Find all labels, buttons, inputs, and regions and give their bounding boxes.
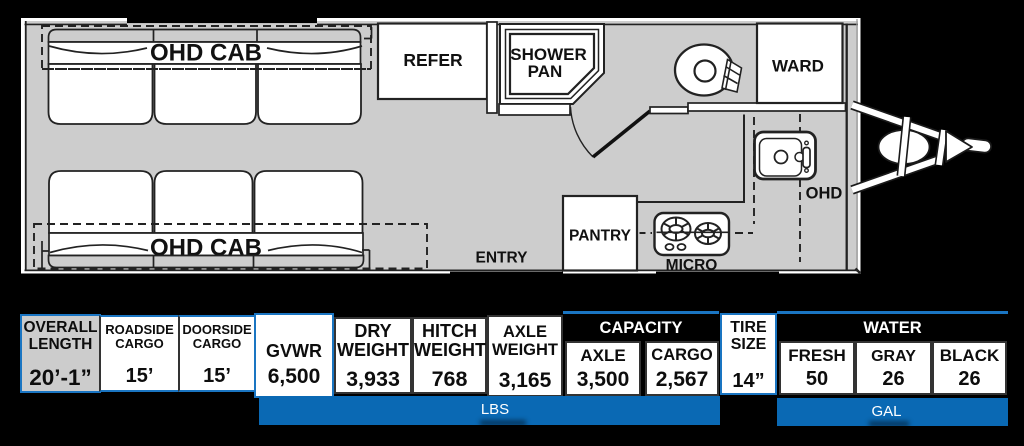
svg-text:ENTRY: ENTRY [476,250,529,267]
svg-text:PAN: PAN [528,62,563,81]
svg-text:OHD CAB: OHD CAB [150,40,262,67]
svg-text:MICRO: MICRO [666,257,718,274]
svg-text:OHD: OHD [806,185,843,203]
svg-text:REFER: REFER [403,50,463,70]
svg-text:WARD: WARD [772,57,824,76]
svg-text:PANTRY: PANTRY [569,228,632,245]
